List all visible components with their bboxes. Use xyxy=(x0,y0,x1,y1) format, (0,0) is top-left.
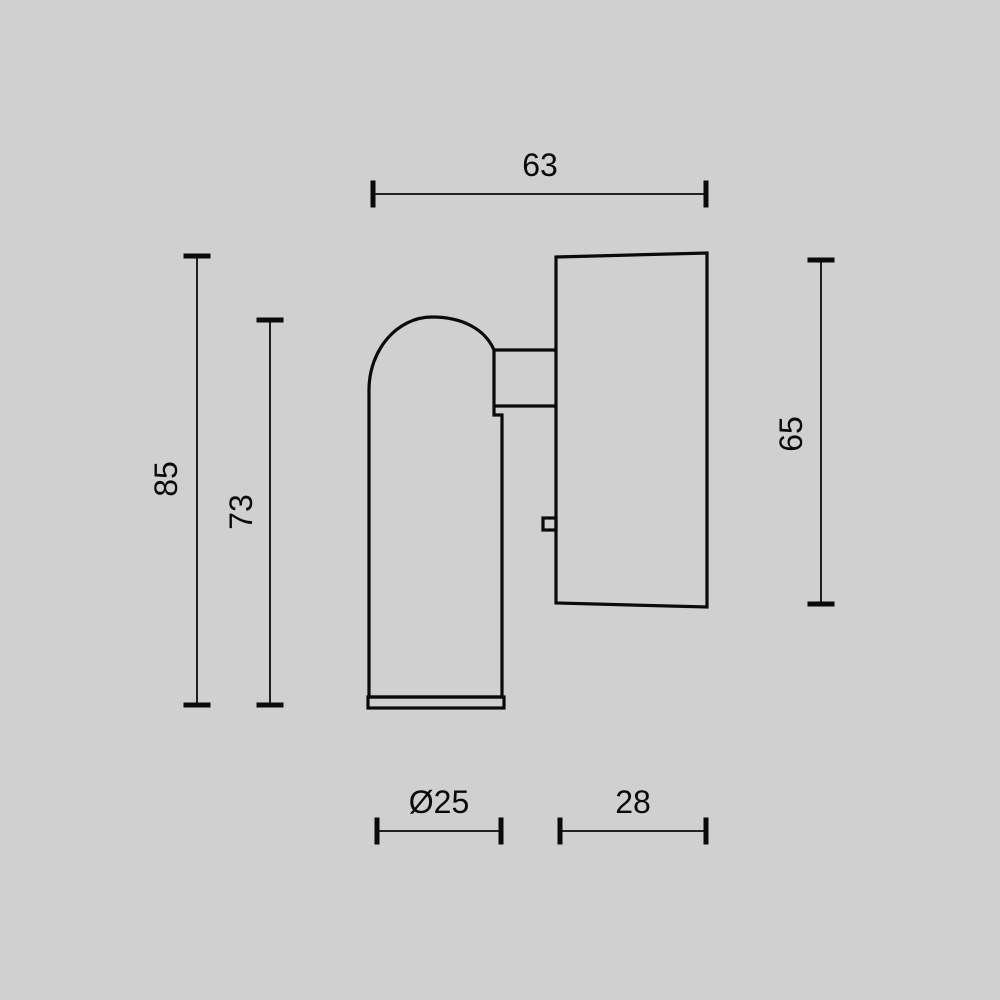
dim-mount-width-tick-left xyxy=(558,818,563,845)
dimension-drawing-canvas: 63 85 73 65 Ø25 xyxy=(0,0,1000,1000)
dim-overall-height-tick-bottom xyxy=(184,703,211,708)
wall-mount-outline xyxy=(556,253,707,607)
dim-mount-height-label: 65 xyxy=(773,416,809,452)
dim-head-diameter-tick-left xyxy=(375,818,380,845)
dim-overall-height-label: 85 xyxy=(148,461,184,497)
spotlight-outline-group xyxy=(368,253,707,708)
lamp-head-outline xyxy=(369,317,502,697)
dim-mount-width: 28 xyxy=(558,784,709,845)
dim-mount-height-tick-top xyxy=(808,258,835,263)
dim-fixture-width-tick-right xyxy=(704,181,709,208)
dim-fixture-width-label: 63 xyxy=(522,147,558,183)
dim-overall-height: 85 xyxy=(148,254,211,708)
dim-head-diameter: Ø25 xyxy=(375,784,504,845)
dim-head-diameter-tick-right xyxy=(499,818,504,845)
dim-head-diameter-label: Ø25 xyxy=(409,784,469,820)
dim-overall-height-tick-top xyxy=(184,254,211,259)
dim-fixture-width: 63 xyxy=(371,147,709,208)
dim-head-height-tick-bottom xyxy=(257,703,284,708)
dim-mount-height: 65 xyxy=(773,258,835,607)
dim-mount-height-tick-bottom xyxy=(808,602,835,607)
dim-mount-width-label: 28 xyxy=(615,784,651,820)
dim-head-height-label: 73 xyxy=(223,494,259,530)
dim-mount-width-tick-right xyxy=(704,818,709,845)
dim-head-height: 73 xyxy=(223,318,284,708)
dim-fixture-width-tick-left xyxy=(371,181,376,208)
pivot-arm-outline xyxy=(494,350,556,406)
switch-detail-outline xyxy=(543,518,556,530)
dim-head-height-tick-top xyxy=(257,318,284,323)
spotlight-dimension-drawing: 63 85 73 65 Ø25 xyxy=(0,0,1000,1000)
lamp-head-rim xyxy=(368,697,504,708)
